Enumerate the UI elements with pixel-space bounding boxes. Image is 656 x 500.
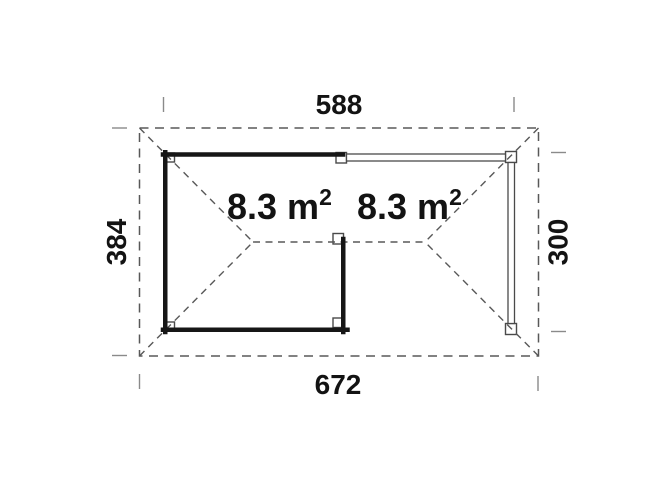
dimension-right-height: 300: [543, 219, 574, 266]
floor-plan-canvas: 588 672 384 300 8.3 m2 8.3 m2: [0, 0, 656, 500]
area-right-superscript: 2: [449, 184, 462, 210]
dimension-left-height: 384: [101, 218, 132, 265]
floor-plan-drawing: 588 672 384 300 8.3 m2 8.3 m2: [0, 0, 656, 500]
area-left-value: 8.3 m: [227, 186, 319, 227]
canopy-beam-top: [347, 154, 506, 161]
post-top-right: [506, 152, 517, 163]
area-left-superscript: 2: [319, 184, 332, 210]
area-label-left: 8.3 m2: [227, 184, 332, 227]
dimension-bottom-width: 672: [315, 369, 362, 400]
dimension-top-width: 588: [316, 89, 363, 120]
area-label-right: 8.3 m2: [357, 184, 462, 227]
area-right-value: 8.3 m: [357, 186, 449, 227]
hip-line-bottom-left: [140, 242, 254, 356]
canopy-beam-group: [347, 154, 515, 324]
hip-line-bottom-right: [425, 242, 539, 356]
canopy-beam-right: [508, 163, 515, 324]
